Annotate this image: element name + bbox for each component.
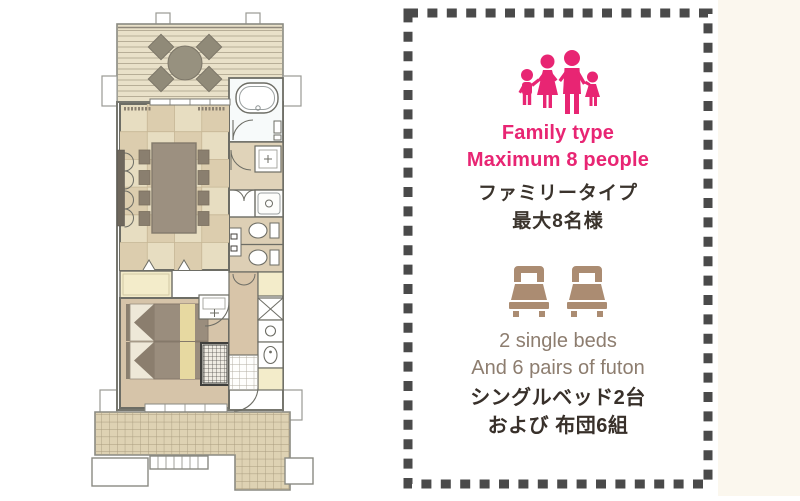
capacity-en-line2: Maximum 8 people <box>403 147 713 174</box>
info-panel: Family type Maximum 8 people ファミリータイプ 最大… <box>403 8 713 489</box>
low-cabinet <box>120 271 172 298</box>
bedding-jp-line2: および 布団6組 <box>403 412 713 440</box>
capacity-text-en: Family type Maximum 8 people <box>403 120 713 174</box>
capacity-jp-line1: ファミリータイプ <box>403 180 713 208</box>
cream-background-strip <box>718 0 800 496</box>
bedding-en-line2: And 6 pairs of futon <box>403 355 713 382</box>
bedding-text-jp: シングルベッド2台 および 布団6組 <box>403 384 713 440</box>
floor-plan <box>0 0 400 496</box>
single-bed-icon <box>564 266 610 318</box>
bedding-icon-row <box>403 266 713 318</box>
floor-plan-svg <box>0 0 400 496</box>
window-band <box>150 99 230 105</box>
bedding-text-en: 2 single beds And 6 pairs of futon <box>403 328 713 382</box>
tatami-room <box>118 104 230 270</box>
capacity-icon-row <box>403 48 713 114</box>
washroom <box>229 142 283 190</box>
bed-1 <box>126 304 208 341</box>
bed-2 <box>126 342 208 379</box>
single-bed-icon <box>506 266 552 318</box>
tokonoma-board <box>118 150 125 226</box>
capacity-jp-line2: 最大8名様 <box>403 208 713 236</box>
unit-shower <box>201 343 229 385</box>
toilet-rooms <box>228 217 283 272</box>
bedroom <box>120 295 229 412</box>
kitchen <box>258 272 283 390</box>
capacity-text-jp: ファミリータイプ 最大8名様 <box>403 180 713 236</box>
family-icon <box>504 48 612 114</box>
bedding-jp-line1: シングルベッド2台 <box>403 384 713 412</box>
capacity-en-line1: Family type <box>403 120 713 147</box>
bedding-en-line1: 2 single beds <box>403 328 713 355</box>
bathroom <box>229 78 283 142</box>
